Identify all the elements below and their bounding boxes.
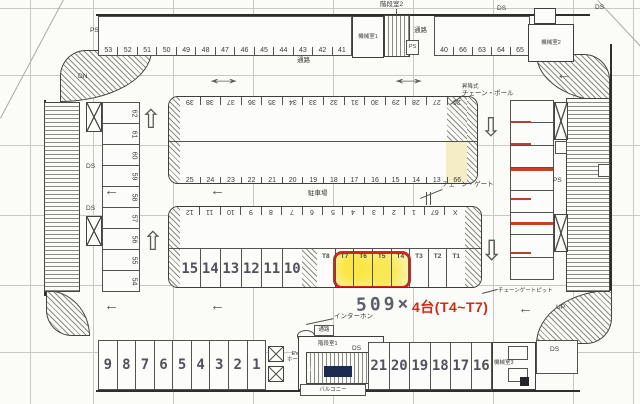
stall-cell: 41 bbox=[333, 47, 351, 55]
elevator-1 bbox=[268, 346, 284, 362]
stall-cell: 15 bbox=[386, 177, 407, 184]
stall-cell: 60 bbox=[103, 145, 139, 166]
wall-box bbox=[598, 164, 610, 177]
red-mark bbox=[511, 121, 531, 123]
stall-cell: 16 bbox=[365, 177, 386, 184]
stall-cell: 3 bbox=[210, 341, 229, 389]
leader-line bbox=[482, 289, 498, 294]
stall-cell: 27 bbox=[427, 97, 448, 105]
stall-cell: 15 bbox=[180, 249, 201, 288]
stall-cell: 42 bbox=[313, 47, 332, 55]
stall-cell: 29 bbox=[386, 97, 407, 105]
shaft-box bbox=[86, 102, 102, 132]
stall-cell: 8 bbox=[262, 207, 282, 215]
stall-cell: 43 bbox=[294, 47, 313, 55]
stall-cell: 37 bbox=[221, 97, 242, 105]
stall-cell: 8 bbox=[118, 341, 137, 389]
stall-cell: 25 bbox=[180, 177, 201, 184]
leader-line bbox=[306, 318, 334, 325]
stall-cell: 63 bbox=[473, 47, 492, 55]
shaft-box bbox=[554, 214, 568, 252]
stall-cell: 10 bbox=[221, 207, 241, 215]
stall-cell: 66 bbox=[454, 47, 473, 55]
balcony-label: バルコニー bbox=[319, 387, 346, 393]
stall-cell: 48 bbox=[196, 47, 215, 55]
ramp-curve-bottom-right bbox=[536, 290, 612, 344]
chain-gate-label: チェーン・ゲート bbox=[442, 181, 494, 188]
stairwell-1-label: 階段室1 bbox=[318, 341, 338, 347]
stall-cell: 1 bbox=[248, 341, 266, 389]
left-arrow: ← bbox=[518, 300, 533, 317]
stall-cell: 16 bbox=[472, 343, 492, 389]
up-arrow: ⇧ bbox=[142, 226, 164, 257]
ds-label-top-right: DS bbox=[595, 4, 604, 11]
stall-cell: 11 bbox=[262, 249, 283, 288]
passage-label-aisle: 通路 bbox=[297, 57, 310, 64]
stall-cell: 17 bbox=[345, 177, 366, 184]
stall-cell: 10 bbox=[283, 249, 303, 288]
ps-label-top-left: PS bbox=[90, 27, 99, 34]
stall-cell: 3 bbox=[364, 207, 384, 215]
shaft-box bbox=[86, 216, 102, 246]
stall-cell: 30 bbox=[365, 97, 386, 105]
stall-cell: 5 bbox=[173, 341, 192, 389]
stall-cell: 21 bbox=[262, 177, 283, 184]
left-arrow: ← bbox=[104, 182, 119, 199]
lower-parking-island: 12111098765432167X 151413121110 T8T7T6T5… bbox=[168, 206, 482, 288]
t-stall-cell: T5 bbox=[373, 249, 392, 288]
stall-row-top-right: 4066636465 bbox=[434, 16, 530, 56]
stair-landing bbox=[324, 366, 352, 377]
stall-cell: 50 bbox=[157, 47, 176, 55]
shaft-box bbox=[554, 102, 568, 140]
machine-room-1: 機械室1 bbox=[352, 16, 384, 58]
stall-row-bottom-left: 987654321 bbox=[98, 340, 266, 390]
stall-cell bbox=[511, 146, 553, 168]
stall-cell: 17 bbox=[451, 343, 472, 389]
red-mark-full bbox=[511, 168, 553, 171]
two-way-arrow: ↔ bbox=[387, 68, 430, 89]
ds-label-top-center: DS bbox=[497, 5, 506, 12]
stall-cell: 67 bbox=[425, 207, 445, 215]
stall-cell: 11 bbox=[200, 207, 220, 215]
stall-cell: 18 bbox=[324, 177, 345, 184]
red-mark bbox=[511, 143, 531, 145]
stall-cell: 46 bbox=[235, 47, 254, 55]
stall-row-bottom-right: 212019181716 bbox=[368, 342, 492, 390]
stall-cell: 35 bbox=[262, 97, 283, 105]
two-way-arrow: ↔ bbox=[202, 68, 245, 89]
stall-cell bbox=[511, 191, 553, 213]
red-mark-full bbox=[511, 222, 553, 225]
stall-cell: 20 bbox=[283, 177, 304, 184]
passage-label-top: 通路 bbox=[414, 27, 427, 34]
stall-cell: 52 bbox=[118, 47, 137, 55]
chain-pole-label: チェーン・ポール bbox=[462, 90, 514, 97]
stall-cell bbox=[511, 168, 553, 190]
down-arrow: ⇩ bbox=[480, 112, 502, 143]
left-ramp bbox=[44, 102, 80, 292]
stall-cell: 19 bbox=[303, 177, 324, 184]
t-stall-cell: T2 bbox=[429, 249, 448, 288]
balcony: バルコニー bbox=[300, 384, 366, 396]
stall-cell: 4 bbox=[343, 207, 363, 215]
ramp-curve-bottom-left bbox=[46, 290, 90, 336]
stall-cell: 34 bbox=[283, 97, 304, 105]
ps-label: PS bbox=[409, 44, 416, 50]
stall-cell: 9 bbox=[241, 207, 261, 215]
t-stall-cell: T1 bbox=[447, 249, 465, 288]
left-arrow: ← bbox=[556, 66, 572, 84]
down-arrow: ⇩ bbox=[480, 234, 503, 267]
dn-label: DN bbox=[78, 73, 87, 80]
stall-cell: 13 bbox=[221, 249, 242, 288]
stall-cell: 64 bbox=[492, 47, 511, 55]
island-row-lower-right: T8T7T6T5T4T3T2T1 bbox=[317, 249, 465, 288]
leader-line bbox=[420, 189, 443, 199]
ds-label-bottom-center: DS bbox=[352, 345, 361, 352]
stall-cell: 51 bbox=[138, 47, 157, 55]
caption-units: 4台(T4~T7) bbox=[412, 297, 488, 317]
left-arrow: ← bbox=[104, 297, 119, 314]
parking-floor-plan: 53525150494847464544434241 機械室1 階段室2 PS … bbox=[0, 0, 640, 404]
stall-cell: 7 bbox=[282, 207, 302, 215]
elevator-2 bbox=[268, 366, 284, 382]
stall-cell: 18 bbox=[431, 343, 452, 389]
stall-cell: 24 bbox=[201, 177, 222, 184]
stall-cell: 22 bbox=[242, 177, 263, 184]
chain-gate-symbol bbox=[426, 192, 431, 205]
t-stall-cell: T6 bbox=[354, 249, 373, 288]
stall-cell: 4 bbox=[192, 341, 211, 389]
ramp-curve-top-left bbox=[60, 50, 152, 102]
ds-label-left-2: DS bbox=[86, 205, 95, 212]
t-stall-cell: T7 bbox=[336, 249, 355, 288]
stall-cell: 28 bbox=[406, 97, 427, 105]
stall-cell bbox=[511, 258, 553, 279]
stall-cell: 7 bbox=[136, 341, 155, 389]
stall-cell: 47 bbox=[216, 47, 235, 55]
wall-right bbox=[610, 44, 612, 294]
ds-label-left-1: DS bbox=[86, 163, 95, 170]
stall-cell: 31 bbox=[345, 97, 366, 105]
stall-cell: 6 bbox=[303, 207, 323, 215]
stall-cell: 19 bbox=[410, 343, 431, 389]
small-shaft-box bbox=[555, 141, 567, 154]
stall-cell: 2 bbox=[229, 341, 248, 389]
island-row-upper: 12111098765432167X bbox=[180, 207, 465, 248]
stall-cell: 36 bbox=[242, 97, 263, 105]
passage-label-bottom: 通路 bbox=[318, 327, 329, 333]
stall-cell: 32 bbox=[324, 97, 345, 105]
equipment-box bbox=[508, 346, 528, 360]
stall-cell: 12 bbox=[180, 207, 200, 215]
u-label: U bbox=[309, 366, 314, 373]
machine-room-2-annex bbox=[534, 8, 556, 24]
intercom-label: インターホン bbox=[334, 313, 373, 320]
stall-cell: 56 bbox=[103, 229, 139, 250]
stall-cell: 14 bbox=[406, 177, 427, 184]
stall-cell: 6 bbox=[155, 341, 174, 389]
up-arrow: ⇧ bbox=[140, 104, 162, 135]
stall-cell: 38 bbox=[201, 97, 222, 105]
stall-cell: 57 bbox=[103, 208, 139, 229]
stairwell-2-label: 階段室2 bbox=[380, 1, 403, 8]
left-arrow: ← bbox=[210, 182, 225, 199]
island-row-lower: 2524232221201918171615141366 bbox=[180, 142, 467, 184]
island-row-upper: 3938373635343332313029282726 bbox=[180, 97, 467, 141]
up-label: UP bbox=[556, 304, 565, 311]
stall-cell: 2 bbox=[384, 207, 404, 215]
t-stall-cell: T3 bbox=[410, 249, 429, 288]
stall-cell: 44 bbox=[274, 47, 293, 55]
t-stall-cell: T8 bbox=[317, 249, 336, 288]
stall-cell: 49 bbox=[177, 47, 196, 55]
stall-cell: 9 bbox=[99, 341, 118, 389]
machine-room-1-label: 機械室1 bbox=[358, 34, 378, 40]
stall-row-top-left: 53525150494847464544434241 bbox=[98, 16, 352, 56]
stall-cell: 14 bbox=[201, 249, 222, 288]
ps-label-right: PS bbox=[553, 177, 562, 184]
machine-room-3-label: 機械室3 bbox=[494, 360, 514, 366]
t-stall-cell: T4 bbox=[392, 249, 411, 288]
leader-line bbox=[396, 9, 397, 15]
passage-box: 通路 bbox=[314, 325, 334, 336]
chain-pole-note: 昇降式 チェーン・ポール bbox=[462, 84, 514, 97]
stall-cell bbox=[511, 235, 553, 257]
stall-cell: 23 bbox=[221, 177, 242, 184]
stall-cell: 33 bbox=[303, 97, 324, 105]
stall-cell: 45 bbox=[255, 47, 274, 55]
right-ramp bbox=[566, 98, 610, 292]
ds-label-bottom-right: DS bbox=[550, 346, 559, 353]
stall-cell: 61 bbox=[103, 124, 139, 145]
left-arrow: ← bbox=[210, 297, 225, 314]
stall-cell: 53 bbox=[99, 47, 118, 55]
stall-cell: 1 bbox=[405, 207, 425, 215]
island-hatch bbox=[302, 248, 317, 288]
stall-cell: 62 bbox=[103, 103, 139, 124]
site-boundary-line bbox=[0, 0, 64, 118]
ps-shaft-top: PS bbox=[406, 40, 419, 55]
parking-area-label: 駐車場 bbox=[308, 190, 328, 197]
stall-cell: 21 bbox=[369, 343, 390, 389]
stall-cell: 5 bbox=[323, 207, 343, 215]
dark-equipment bbox=[520, 377, 529, 386]
chain-gate-pit-label: チェーンゲートピット bbox=[498, 288, 553, 294]
upper-parking-island: 3938373635343332313029282726 25242322212… bbox=[168, 96, 478, 184]
stall-cell: 65 bbox=[511, 47, 529, 55]
stall-cell: 20 bbox=[390, 343, 411, 389]
stall-cell: 39 bbox=[180, 97, 201, 105]
stall-cell: 55 bbox=[103, 250, 139, 271]
machine-room-2-label: 機械室2 bbox=[541, 40, 561, 46]
red-mark bbox=[511, 198, 531, 200]
island-row-lower-left: 151413121110 bbox=[180, 249, 302, 288]
stall-cell: 40 bbox=[435, 47, 454, 55]
red-mark bbox=[511, 252, 531, 254]
machine-room-2: 機械室2 bbox=[528, 24, 574, 62]
stall-cell: 12 bbox=[242, 249, 263, 288]
grid-line bbox=[633, 0, 634, 404]
stall-cell: 54 bbox=[103, 271, 139, 291]
stall-cell: X bbox=[445, 207, 464, 215]
